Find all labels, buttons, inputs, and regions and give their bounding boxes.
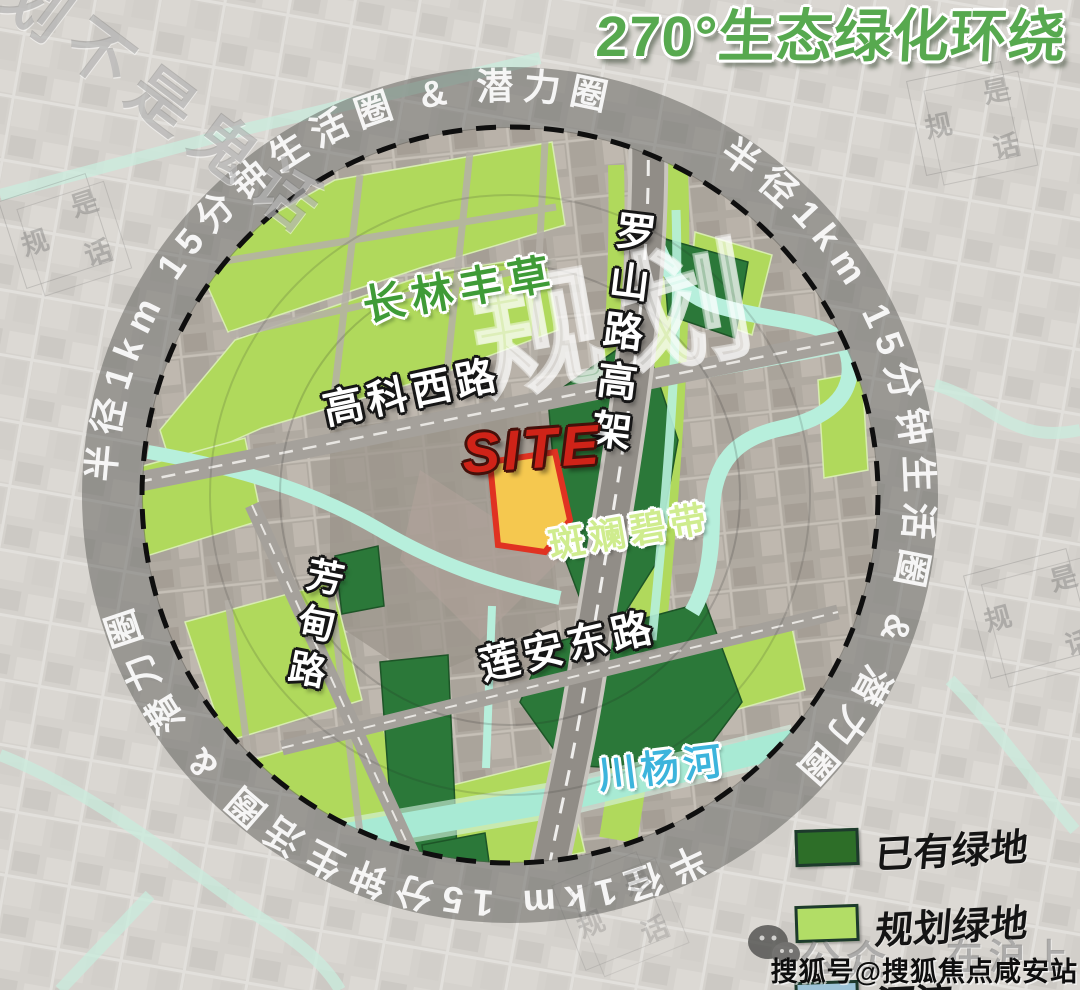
legend-item-existing-green: 已有绿地 <box>795 820 1080 875</box>
watermark-cube-topright: 规 是 话 <box>906 61 1021 176</box>
sohu-watermark: 搜狐号@搜狐焦点咸安站 <box>771 950 1078 989</box>
page: 半径1km 15分钟生活圈 & 潜力圈 半径1km 15分钟生活圈 & 潜力圈 … <box>0 0 1080 990</box>
legend-label: 已有绿地 <box>873 816 1031 879</box>
label-site: SITE <box>460 415 604 483</box>
legend-swatch-existing-green <box>794 828 859 867</box>
page-title: 270°生态绿化环绕 <box>595 8 1068 68</box>
